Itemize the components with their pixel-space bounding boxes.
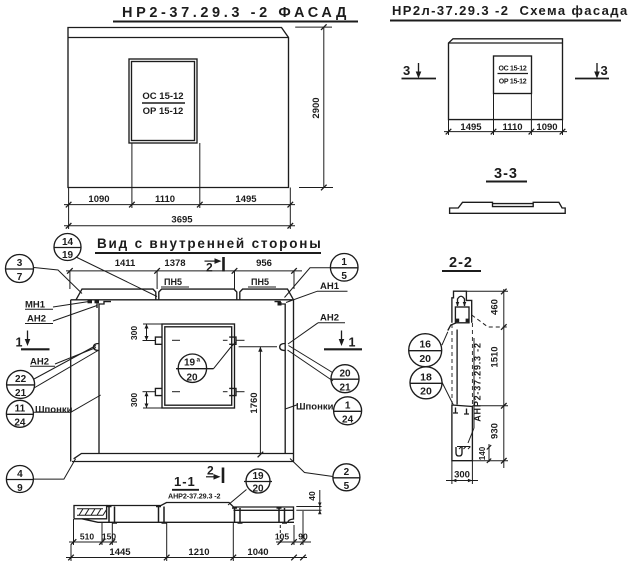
- svg-text:1378: 1378: [164, 258, 185, 269]
- svg-text:19: 19: [62, 250, 74, 261]
- svg-text:Вид с внутренней стороны: Вид с внутренней стороны: [97, 236, 323, 251]
- svg-text:1495: 1495: [460, 122, 482, 133]
- svg-text:1445: 1445: [109, 547, 131, 558]
- svg-text:а: а: [197, 357, 201, 364]
- svg-text:9: 9: [17, 483, 23, 494]
- svg-text:90: 90: [298, 532, 308, 542]
- svg-text:14: 14: [62, 237, 74, 248]
- svg-text:1510: 1510: [490, 346, 501, 367]
- svg-text:7: 7: [17, 272, 23, 283]
- svg-text:1411: 1411: [115, 258, 136, 269]
- svg-text:1110: 1110: [502, 122, 522, 133]
- svg-text:1: 1: [341, 257, 347, 268]
- svg-text:Шпонки: Шпонки: [35, 405, 73, 416]
- svg-text:2-2: 2-2: [449, 255, 473, 271]
- svg-text:2900: 2900: [311, 97, 322, 118]
- svg-text:1210: 1210: [188, 547, 209, 558]
- svg-text:ПН5: ПН5: [164, 277, 182, 287]
- svg-text:24: 24: [342, 415, 354, 426]
- svg-text:21: 21: [339, 382, 351, 393]
- svg-text:5: 5: [344, 481, 350, 492]
- svg-text:21: 21: [15, 388, 27, 399]
- svg-text:510: 510: [80, 532, 94, 542]
- svg-text:1: 1: [349, 336, 356, 350]
- svg-text:20: 20: [419, 353, 431, 365]
- svg-text:1110: 1110: [155, 194, 175, 205]
- svg-text:150: 150: [102, 532, 116, 542]
- svg-text:20: 20: [420, 386, 432, 398]
- svg-text:300: 300: [129, 326, 139, 340]
- svg-text:1760: 1760: [249, 392, 260, 413]
- svg-text:ОР 15-12: ОР 15-12: [499, 79, 527, 86]
- svg-text:ОС 15-12: ОС 15-12: [499, 66, 527, 73]
- svg-text:3-3: 3-3: [494, 166, 518, 182]
- svg-text:40: 40: [307, 491, 317, 501]
- svg-text:19: 19: [184, 358, 196, 369]
- svg-text:ОР 15-12: ОР 15-12: [143, 106, 184, 117]
- svg-text:1090: 1090: [536, 122, 557, 133]
- svg-text:АН2: АН2: [27, 314, 46, 325]
- svg-text:300: 300: [129, 393, 139, 407]
- svg-text:300: 300: [454, 470, 470, 481]
- svg-text:24: 24: [14, 418, 26, 429]
- svg-text:1: 1: [345, 401, 351, 412]
- svg-text:НР2л-37.29.3 -2 Схема фасада: НР2л-37.29.3 -2 Схема фасада: [392, 3, 629, 18]
- svg-text:НР2-37.29.3 -2 ФАСАД: НР2-37.29.3 -2 ФАСАД: [122, 5, 350, 21]
- svg-text:20: 20: [252, 484, 264, 495]
- svg-text:Шпонки: Шпонки: [296, 402, 334, 413]
- svg-text:20: 20: [186, 373, 198, 384]
- svg-text:АНР2-37.29.3 -2: АНР2-37.29.3 -2: [168, 492, 221, 501]
- svg-text:1090: 1090: [88, 194, 109, 205]
- svg-text:ПН5: ПН5: [251, 277, 269, 287]
- svg-text:АН1: АН1: [320, 281, 340, 292]
- svg-text:3: 3: [17, 258, 23, 269]
- svg-text:18: 18: [420, 371, 432, 383]
- svg-text:3: 3: [403, 63, 410, 78]
- svg-text:140: 140: [478, 446, 487, 460]
- svg-text:930: 930: [490, 423, 501, 439]
- svg-text:1: 1: [16, 336, 23, 350]
- svg-text:2: 2: [344, 467, 350, 478]
- svg-text:956: 956: [256, 258, 272, 269]
- svg-text:22: 22: [15, 374, 27, 385]
- svg-text:460: 460: [490, 299, 501, 315]
- svg-text:19: 19: [252, 471, 264, 482]
- svg-text:АН2: АН2: [320, 313, 339, 324]
- svg-text:5: 5: [341, 271, 347, 282]
- svg-text:1495: 1495: [235, 194, 257, 205]
- svg-text:1040: 1040: [247, 547, 268, 558]
- svg-text:105: 105: [275, 532, 289, 542]
- svg-text:3695: 3695: [171, 215, 193, 226]
- svg-text:11: 11: [15, 404, 26, 415]
- svg-text:4: 4: [17, 469, 23, 480]
- svg-text:20: 20: [339, 368, 351, 379]
- svg-text:2: 2: [206, 261, 213, 275]
- svg-text:16: 16: [419, 339, 431, 351]
- svg-text:3: 3: [601, 63, 608, 78]
- svg-text:ОС 15-12: ОС 15-12: [142, 91, 183, 102]
- svg-text:1-1: 1-1: [174, 474, 196, 489]
- svg-text:2: 2: [207, 464, 214, 478]
